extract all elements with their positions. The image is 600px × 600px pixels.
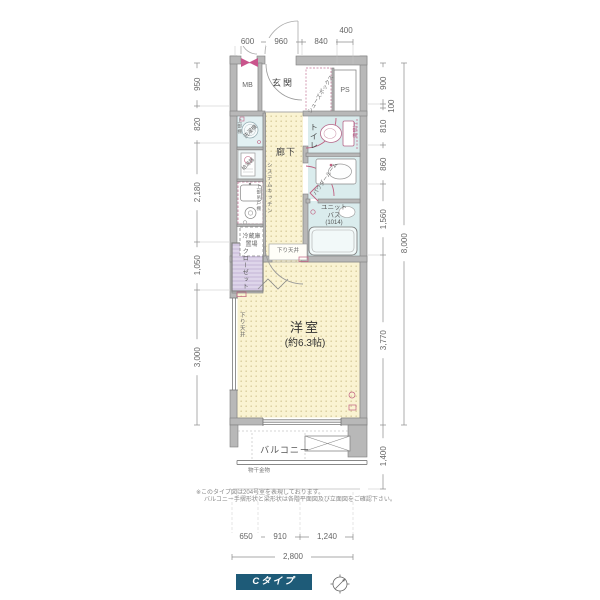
dim-right-total-8000: 8,000 [401,225,409,261]
note-line2: バルコニー手摺形状と梁形状は各階平面図及び立面図をご確認下さい。 [204,494,396,503]
label-closet: クローゼット [241,248,247,290]
dim-right-860: 860 [380,148,388,180]
label-washer-upper-shelf: 上部棚 [237,118,242,144]
floor-plan-drawing [0,0,600,600]
label-lowered-ceiling-top: 下り天井 [272,249,304,255]
dim-top-400: 400 [332,27,360,35]
label-meter-box: MB [238,82,257,89]
label-pipe-space: PS [336,87,354,94]
label-unit-bath-line1: ユニット [314,205,354,212]
compass-icon [331,575,350,594]
dim-right-810: 810 [380,110,388,142]
dim-left-3000: 3,000 [194,339,202,375]
label-main-room-size: (約6.3帖) [277,339,333,350]
floor-plan-page: 600 960 840 400 950 820 2,180 1,050 3,00… [0,0,600,600]
label-toilet: トイレ [309,123,317,157]
dim-bottom-910: 910 [265,533,295,541]
dim-left-2180: 2,180 [194,174,202,210]
dim-top-600: 600 [234,38,261,46]
dim-balcony-1400: 1,400 [380,438,388,474]
dim-left-1050: 1,050 [194,247,202,283]
balcony-rail [237,461,367,465]
dim-right-1560: 1,560 [380,201,388,237]
label-toilet-upper-shelf: 上部棚 [352,122,357,148]
label-main-room: 洋室 [283,321,327,335]
label-fridge-line1: 冷蔵庫 [240,234,263,240]
balcony-layer [233,431,367,489]
label-hallway: 廊下 [272,148,300,157]
type-label-badge: Cタイプ [236,574,312,590]
label-upper-cabinet: 上部吊戸棚 [256,184,261,224]
label-balcony: バルコニー [255,446,315,455]
label-unit-bath-line2: バス [314,213,354,220]
dim-top-840: 840 [306,38,336,46]
label-unit-bath-size: (1014) [314,220,354,226]
dim-bottom-1240: 1,240 [309,533,345,541]
label-drying-fixture: 物干金物 [248,469,270,475]
label-entrance: 玄関 [266,79,300,88]
dim-right-100: 100 [388,92,396,120]
label-lowered-ceiling-side: 下り天井 [238,312,244,348]
label-system-kitchen: システムキッチン [265,162,271,220]
dim-top-960: 960 [266,38,296,46]
dim-left-820: 820 [194,108,202,140]
dim-left-950: 950 [194,68,202,100]
dim-bottom-650: 650 [231,533,261,541]
dim-bottom-total-2800: 2,800 [275,553,311,561]
dim-right-3770: 3,770 [380,322,388,358]
